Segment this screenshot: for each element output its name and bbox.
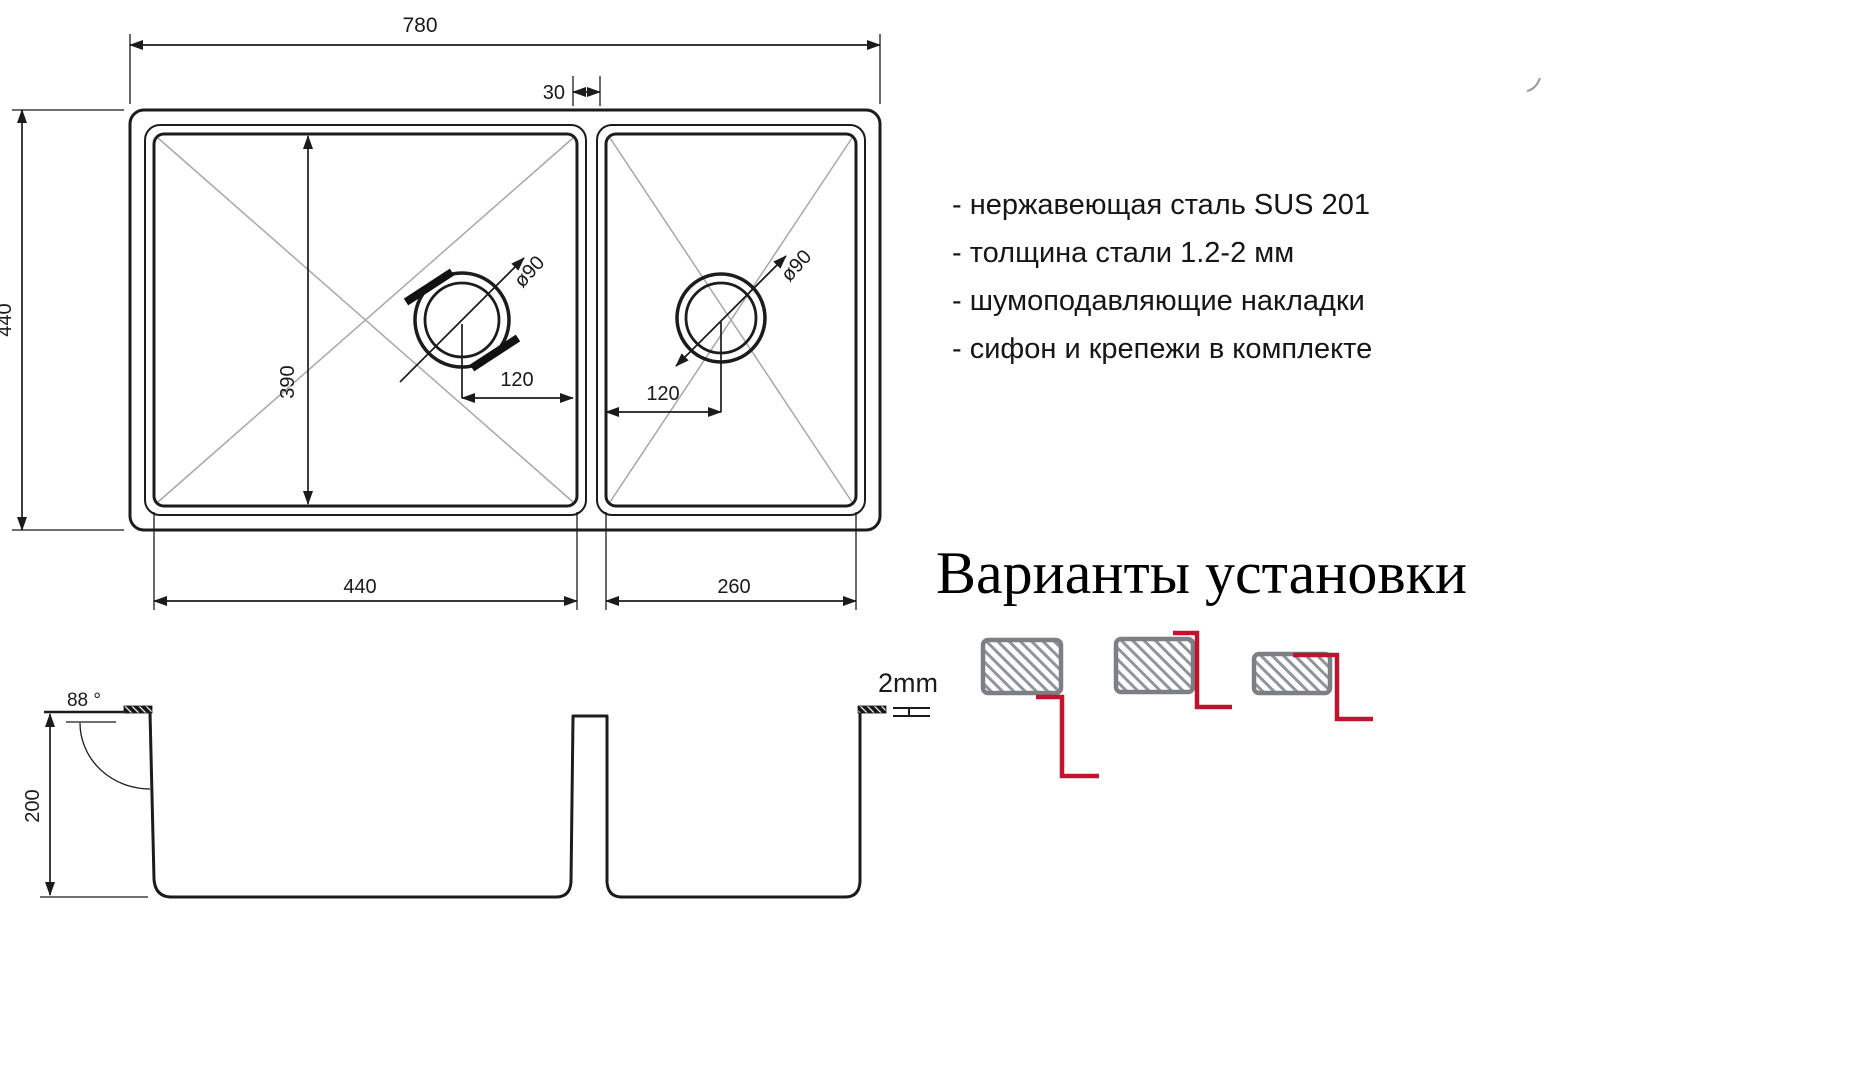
spec-item-noise-pads: - шумоподавляющие накладки <box>952 277 1372 325</box>
dim-drain1-offset-label: 120 <box>500 369 533 391</box>
spec-item-siphon: - сифон и крепежи в комплекте <box>952 325 1372 373</box>
dim-drain2-diameter-line <box>676 256 786 366</box>
spec-item-steel: - нержавеющая сталь SUS 201 <box>952 181 1372 229</box>
side-section-profile <box>150 712 860 897</box>
dim-drain1-diameter-label: ø90 <box>510 252 549 292</box>
dim-thickness-label: 2mm <box>878 668 938 698</box>
angle-arc <box>80 723 150 789</box>
dim-overall-width-label: 780 <box>402 14 437 37</box>
installation-options-title: Варианты установки <box>936 540 1467 606</box>
install-option-undermount <box>983 640 1099 776</box>
dim-wall-angle-label: 88 ° <box>67 690 101 711</box>
dim-bowl2-width-label: 260 <box>717 576 750 598</box>
install-option-topmount <box>1254 654 1373 719</box>
dim-overall-depth-label: 440 <box>0 303 16 336</box>
technical-drawing: 120 120 390 ø90 ø90 780 30 440 <box>0 0 1870 1082</box>
countertop-section-3 <box>1254 654 1330 693</box>
stray-mark <box>1527 78 1540 91</box>
sink-technical-drawing-page: 120 120 390 ø90 ø90 780 30 440 <box>0 0 1870 1082</box>
countertop-section-2 <box>1116 639 1193 692</box>
dim-bowl1-width-label: 440 <box>343 576 376 598</box>
installation-diagrams <box>983 633 1373 776</box>
dim-drain2-diameter-label: ø90 <box>777 246 816 286</box>
dim-divider-label: 30 <box>543 82 565 104</box>
spec-item-thickness: - толщина стали 1.2-2 мм <box>952 229 1372 277</box>
dim-drain2-offset-label: 120 <box>646 383 679 405</box>
sink-outer-rim <box>130 110 880 530</box>
install-option-flush <box>1116 633 1232 707</box>
dim-height-label: 200 <box>22 789 44 822</box>
side-rim-lip-left <box>124 706 152 713</box>
side-rim-lip-right <box>858 706 886 713</box>
countertop-section-1 <box>983 640 1061 693</box>
dim-bowl-depth-label: 390 <box>277 365 299 398</box>
top-view: 120 120 390 ø90 ø90 780 30 440 <box>0 14 880 610</box>
sink-edge-profile-1 <box>1036 697 1099 776</box>
spec-list: - нержавеющая сталь SUS 201 - толщина ст… <box>952 181 1372 373</box>
side-view: 88 ° 2mm 200 <box>22 668 938 897</box>
